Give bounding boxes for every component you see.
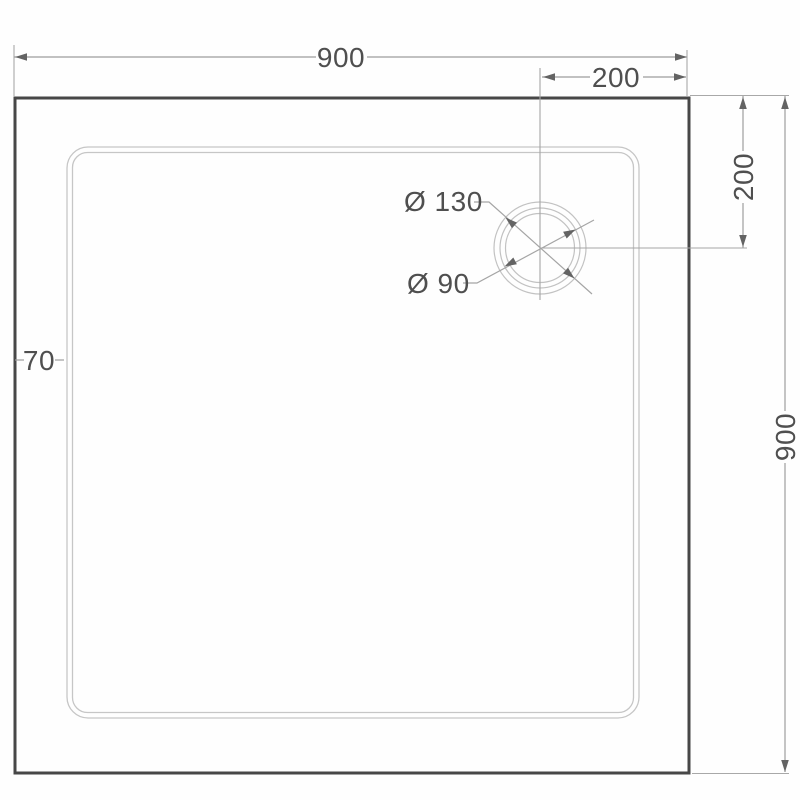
arrowhead (781, 97, 789, 109)
arrowhead (675, 53, 687, 61)
arrowhead (739, 235, 747, 247)
drain-waste (494, 68, 747, 300)
tray-outer-edge (15, 98, 689, 773)
label-overall-width: 900 (317, 42, 365, 73)
drawing-sheet: Ø 130 Ø 90 900 200 (0, 0, 800, 800)
dimension-top-width: 900 (14, 42, 687, 96)
label-drain-outer-diameter: Ø 130 (404, 186, 483, 217)
arrowhead (543, 73, 555, 81)
arrowhead (739, 97, 747, 109)
arrowhead (15, 53, 27, 61)
label-rim-width: 70 (23, 345, 55, 376)
leader-drain-inner-diameter: Ø 90 (407, 220, 594, 299)
arrowhead (674, 73, 686, 81)
tray-inner-rim (67, 147, 639, 718)
label-drain-offset-vertical: 200 (728, 153, 759, 201)
dimension-drain-offset-vertical: 200 (690, 96, 789, 249)
arrowhead (781, 760, 789, 772)
label-drain-offset-horizontal: 200 (592, 62, 640, 93)
label-overall-height: 900 (770, 413, 800, 461)
shower-tray-technical-drawing: Ø 130 Ø 90 900 200 (0, 0, 800, 800)
rim-outer-line (67, 147, 639, 718)
label-drain-inner-diameter: Ø 90 (407, 268, 470, 299)
dimension-rim-width: 70 (15, 345, 64, 376)
rim-inner-line (73, 153, 634, 713)
